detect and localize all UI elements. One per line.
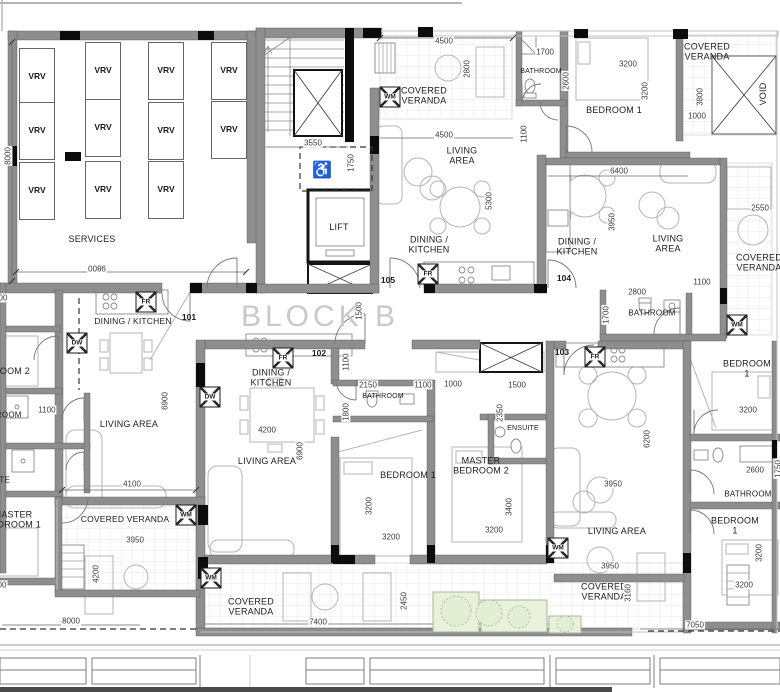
floor-plan: SERVICESCOVERED VERANDALIVING AREADINING… — [0, 0, 780, 692]
upper-floor-outline — [0, 0, 462, 31]
staircase — [260, 36, 344, 136]
floor-plan-drawing — [0, 0, 780, 692]
lower-floor-railings — [0, 645, 780, 692]
veranda-floor-grids — [57, 35, 776, 629]
lift-shaft — [308, 190, 372, 262]
void-opening — [712, 56, 776, 134]
